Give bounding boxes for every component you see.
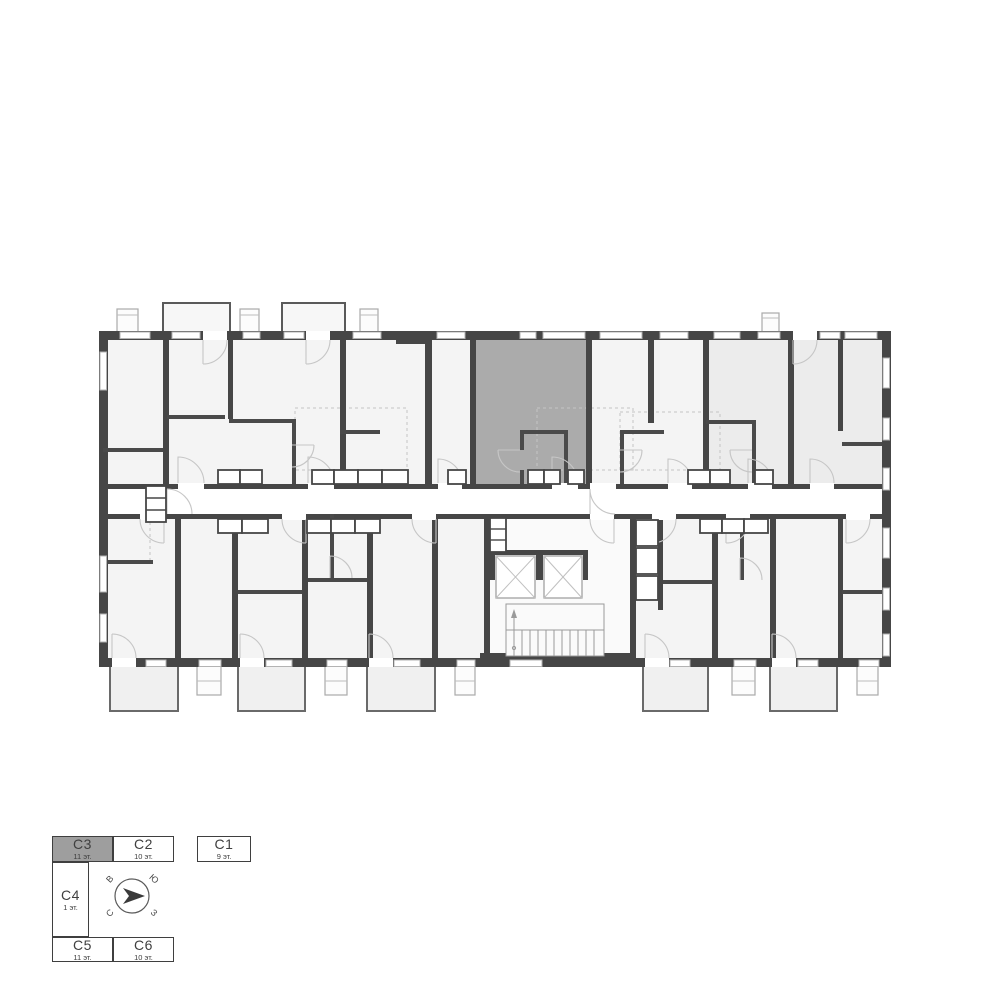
section-floors: 11 эт. <box>73 853 91 861</box>
legend-section-c1[interactable]: C1 9 эт. <box>197 836 251 862</box>
compass-north-label: С <box>104 907 116 919</box>
bay-window <box>360 309 378 333</box>
section-floors: 10 эт. <box>134 954 153 962</box>
balcony <box>110 665 178 711</box>
bay-window <box>117 309 138 333</box>
section-id: C6 <box>134 938 153 952</box>
balcony <box>643 665 708 711</box>
balcony <box>163 303 230 333</box>
balcony <box>770 665 837 711</box>
section-floors: 1 эт. <box>63 904 78 912</box>
legend-section-c5[interactable]: C5 11 эт. <box>52 937 113 962</box>
compass-south-label: Ю <box>147 872 160 886</box>
balcony <box>282 303 345 333</box>
bay-window <box>240 309 259 333</box>
legend-section-c2[interactable]: C2 10 эт. <box>113 836 174 862</box>
section-id: C4 <box>61 888 80 902</box>
highlighted-unit[interactable] <box>476 336 586 484</box>
section-id: C3 <box>73 837 92 851</box>
compass: В Ю С З <box>104 868 160 924</box>
legend-section-c6[interactable]: C6 10 эт. <box>113 937 174 962</box>
legend-section-c4[interactable]: C4 1 эт. <box>52 862 89 937</box>
compass-east-label: В <box>104 873 115 884</box>
bay-window <box>762 313 779 333</box>
corridor <box>106 489 882 514</box>
section-floors: 11 эт. <box>73 954 91 962</box>
balcony <box>238 665 305 711</box>
section-id: C1 <box>215 837 234 851</box>
balcony <box>367 665 435 711</box>
section-floors: 10 эт. <box>134 853 153 861</box>
section-floors: 9 эт. <box>217 853 232 861</box>
section-id: C2 <box>134 837 153 851</box>
section-id: C5 <box>73 938 92 952</box>
compass-west-label: З <box>149 907 160 918</box>
legend-section-c3[interactable]: C3 11 эт. <box>52 836 113 862</box>
compass-needle <box>123 888 145 904</box>
page: C3 11 эт. C2 10 эт. C1 9 эт. C4 1 эт. C5… <box>0 0 1000 1000</box>
stairwell <box>506 604 604 656</box>
